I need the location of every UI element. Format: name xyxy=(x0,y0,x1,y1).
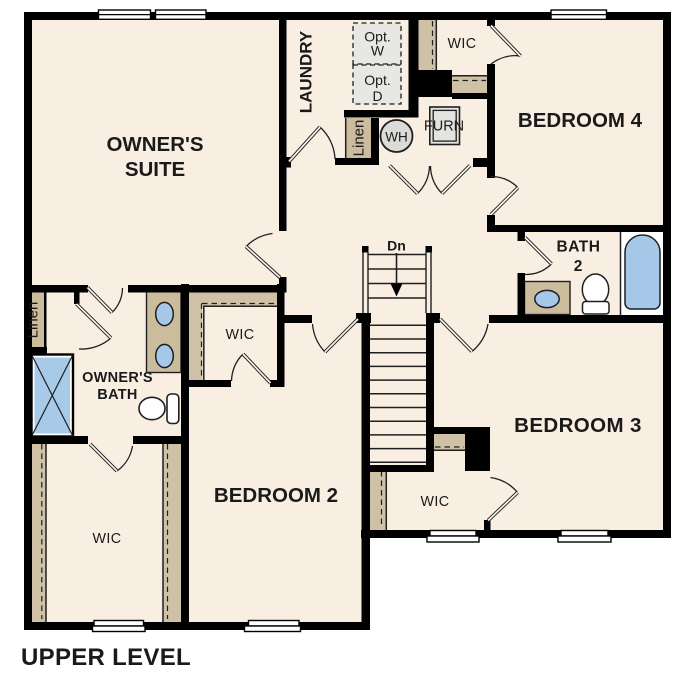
svg-text:WH: WH xyxy=(385,130,408,145)
svg-text:WIC: WIC xyxy=(421,494,450,510)
svg-text:Linen: Linen xyxy=(25,302,42,339)
svg-text:FURN: FURN xyxy=(424,118,464,134)
svg-text:BEDROOM 4: BEDROOM 4 xyxy=(518,109,643,132)
svg-text:BATH: BATH xyxy=(97,387,137,403)
svg-text:BEDROOM 3: BEDROOM 3 xyxy=(514,414,642,437)
svg-text:OWNER'S: OWNER'S xyxy=(106,133,203,156)
svg-text:Opt.: Opt. xyxy=(364,72,390,88)
svg-text:LAUNDRY: LAUNDRY xyxy=(297,30,316,113)
svg-text:UPPER LEVEL: UPPER LEVEL xyxy=(21,644,191,671)
svg-text:WIC: WIC xyxy=(93,531,122,547)
svg-text:W: W xyxy=(371,43,385,59)
svg-text:Linen: Linen xyxy=(351,120,368,157)
svg-text:SUITE: SUITE xyxy=(125,158,185,181)
svg-text:BEDROOM 2: BEDROOM 2 xyxy=(214,484,338,507)
svg-text:BATH: BATH xyxy=(557,239,601,256)
svg-text:D: D xyxy=(372,88,382,104)
svg-text:2: 2 xyxy=(574,258,583,275)
svg-text:OWNER'S: OWNER'S xyxy=(82,370,153,386)
svg-text:Dn: Dn xyxy=(387,238,406,254)
svg-text:WIC: WIC xyxy=(226,327,255,343)
svg-text:WIC: WIC xyxy=(448,36,477,52)
